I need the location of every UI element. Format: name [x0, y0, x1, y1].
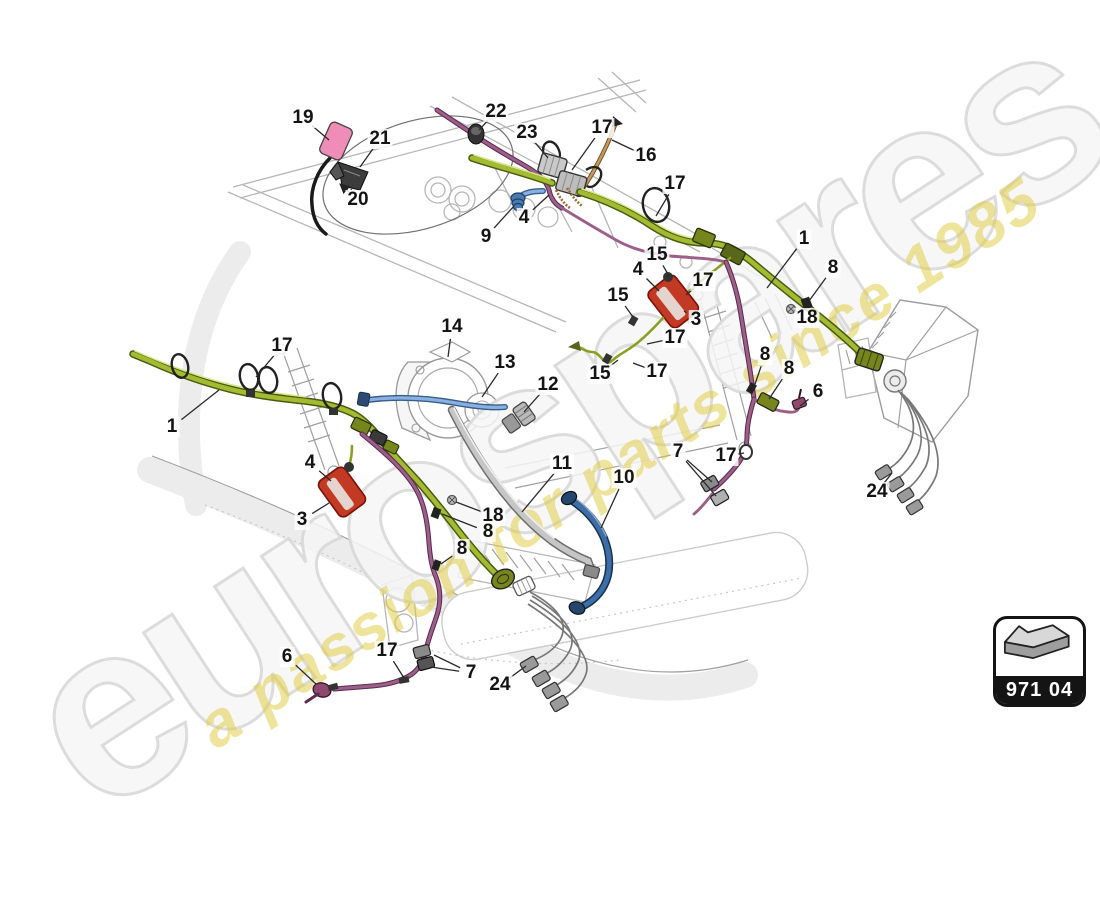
leader-line-21 [360, 149, 373, 167]
purple-branch-right [694, 262, 807, 514]
leader-line-7 [687, 460, 712, 482]
sensor-wires-24-left [512, 575, 587, 712]
control-unit-3-lower [316, 446, 368, 519]
leader-line-8 [441, 556, 452, 564]
wiring-harness-lower [133, 351, 518, 593]
leader-line-6 [296, 665, 316, 684]
breather-grommet-9 [511, 191, 543, 211]
leader-line-13 [482, 373, 498, 397]
leader-line-17 [633, 363, 646, 368]
leader-line-7 [431, 667, 459, 671]
leader-line-17 [647, 341, 663, 344]
leader-line-1 [181, 390, 219, 420]
leader-line-8 [754, 366, 761, 387]
leader-line-8 [809, 278, 826, 301]
sensor-wires-24-right [875, 370, 939, 515]
ring-clip-17 [740, 445, 752, 459]
leader-line-18 [456, 502, 482, 512]
blue-wire-13 [357, 392, 536, 436]
direction-arrow-icon [996, 619, 1083, 676]
connector-7-b [710, 489, 729, 507]
part-section-code: 971 04 [996, 676, 1083, 704]
harness-art [0, 0, 1100, 800]
leader-line-24 [510, 666, 526, 678]
leader-line-17 [572, 138, 595, 170]
leader-line-4 [533, 195, 549, 210]
leader-line-15 [625, 306, 633, 317]
leader-line-10 [601, 489, 619, 528]
parts-diagram-page: { "page": {"background": "#ffffff", "typ… [0, 0, 1100, 800]
leader-line-7 [434, 655, 460, 668]
leader-line-17 [256, 355, 274, 377]
mounting-bracket [330, 162, 368, 190]
leader-line-16 [612, 140, 635, 151]
t-fitting-6-right [792, 397, 807, 410]
part-section-badge: 971 04 [993, 616, 1086, 707]
leader-line-14 [448, 339, 450, 357]
leader-line-11 [522, 473, 554, 512]
leader-line-9 [494, 206, 514, 228]
leader-line-17 [393, 661, 404, 678]
leader-line-8 [769, 379, 782, 399]
leader-line-17 [656, 194, 669, 216]
purple-wire-lower [306, 434, 441, 702]
wiring-harness-upper [472, 155, 884, 372]
control-unit-3-upper [568, 258, 730, 364]
leader-line-20 [351, 189, 352, 190]
leader-line-3 [312, 503, 329, 514]
